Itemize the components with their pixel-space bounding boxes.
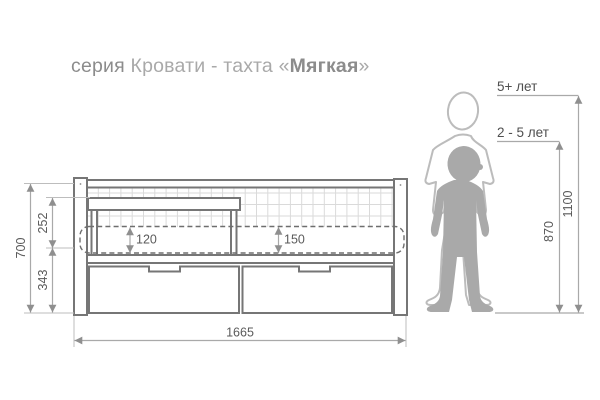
child-2-5-body xyxy=(427,180,493,312)
backrest-support-right xyxy=(231,210,237,255)
dim-label-343: 343 xyxy=(36,270,50,291)
age-label-older: 5+ лет xyxy=(497,79,537,94)
backrest-bar xyxy=(88,198,240,210)
child-silhouettes xyxy=(425,91,493,312)
age-label-younger: 2 - 5 лет xyxy=(497,125,549,140)
bed-side-view xyxy=(74,178,407,315)
child-2-5-ear xyxy=(477,164,483,170)
dimension-length: 1665 xyxy=(74,316,406,347)
dim-label-252: 252 xyxy=(36,213,50,234)
child-5plus-head xyxy=(446,91,480,131)
mattress-dashed-outline xyxy=(80,227,404,254)
post-dot-right xyxy=(400,184,402,186)
bed-dimension-diagram: 700 252 343 120 150 1665 5+ лет 2 - 5 ле… xyxy=(0,0,600,400)
dim-label-700: 700 xyxy=(14,238,28,259)
dim-label-1665: 1665 xyxy=(226,326,254,340)
drawer-right xyxy=(243,267,393,314)
bed-post-right xyxy=(394,179,407,315)
top-rail xyxy=(87,180,394,188)
dim-label-150: 150 xyxy=(284,233,305,247)
bed-base xyxy=(87,255,394,263)
dim-label-1100: 1100 xyxy=(561,191,575,218)
post-dot-left xyxy=(80,183,82,185)
drawer-left xyxy=(89,267,239,314)
product-dimension-sheet: { "title": { "series": "серия", "categor… xyxy=(0,0,600,400)
dim-label-870: 870 xyxy=(542,221,556,242)
backrest-support-left xyxy=(92,210,98,255)
mattress-dimensions: 120 150 xyxy=(130,227,305,253)
dim-label-120: 120 xyxy=(136,233,157,247)
dimension-lines-right: 5+ лет 2 - 5 лет 1100 870 xyxy=(495,79,584,313)
